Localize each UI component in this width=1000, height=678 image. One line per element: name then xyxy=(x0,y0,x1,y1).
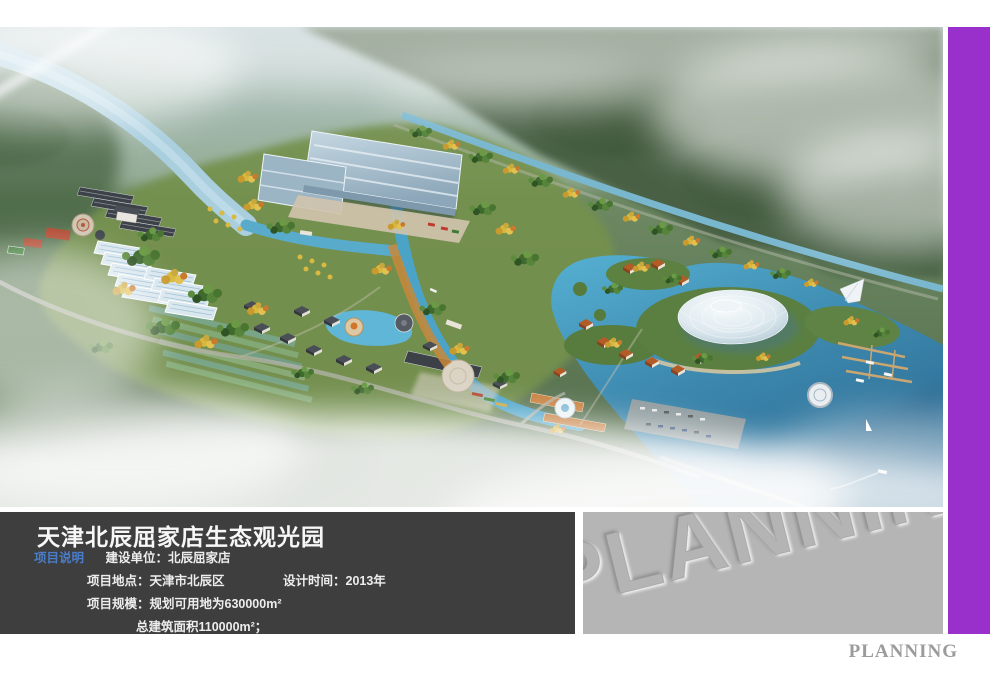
watermark-panel: PLANNING xyxy=(583,512,943,634)
area-text: 总建筑面积110000m²； xyxy=(136,616,267,635)
helipad xyxy=(808,383,832,407)
project-info-panel: 天津北辰屈家店生态观光园 项目说明 建设单位：北辰屈家店 项目地点：天津市北辰区… xyxy=(0,512,575,634)
accent-bar xyxy=(948,27,990,634)
aerial-rendering xyxy=(0,27,943,507)
presentation-board: 天津北辰屈家店生态观光园 项目说明 建设单位：北辰屈家店 项目地点：天津市北辰区… xyxy=(0,0,1000,678)
info-row-owner: 项目说明 建设单位：北辰屈家店 xyxy=(34,547,231,566)
design-time-text: 设计时间：2013年 xyxy=(283,570,386,589)
location-text: 项目地点：天津市北辰区 xyxy=(87,570,225,589)
planning-watermark: PLANNING xyxy=(583,512,943,623)
footer-planning-label: PLANNING xyxy=(828,641,958,663)
aerial-rendering-svg xyxy=(0,27,943,507)
owner-text: 建设单位：北辰屈家店 xyxy=(106,551,231,565)
section-label: 项目说明 xyxy=(34,551,84,565)
scale-text: 项目规模：规划可用地为630000m² xyxy=(87,593,282,612)
